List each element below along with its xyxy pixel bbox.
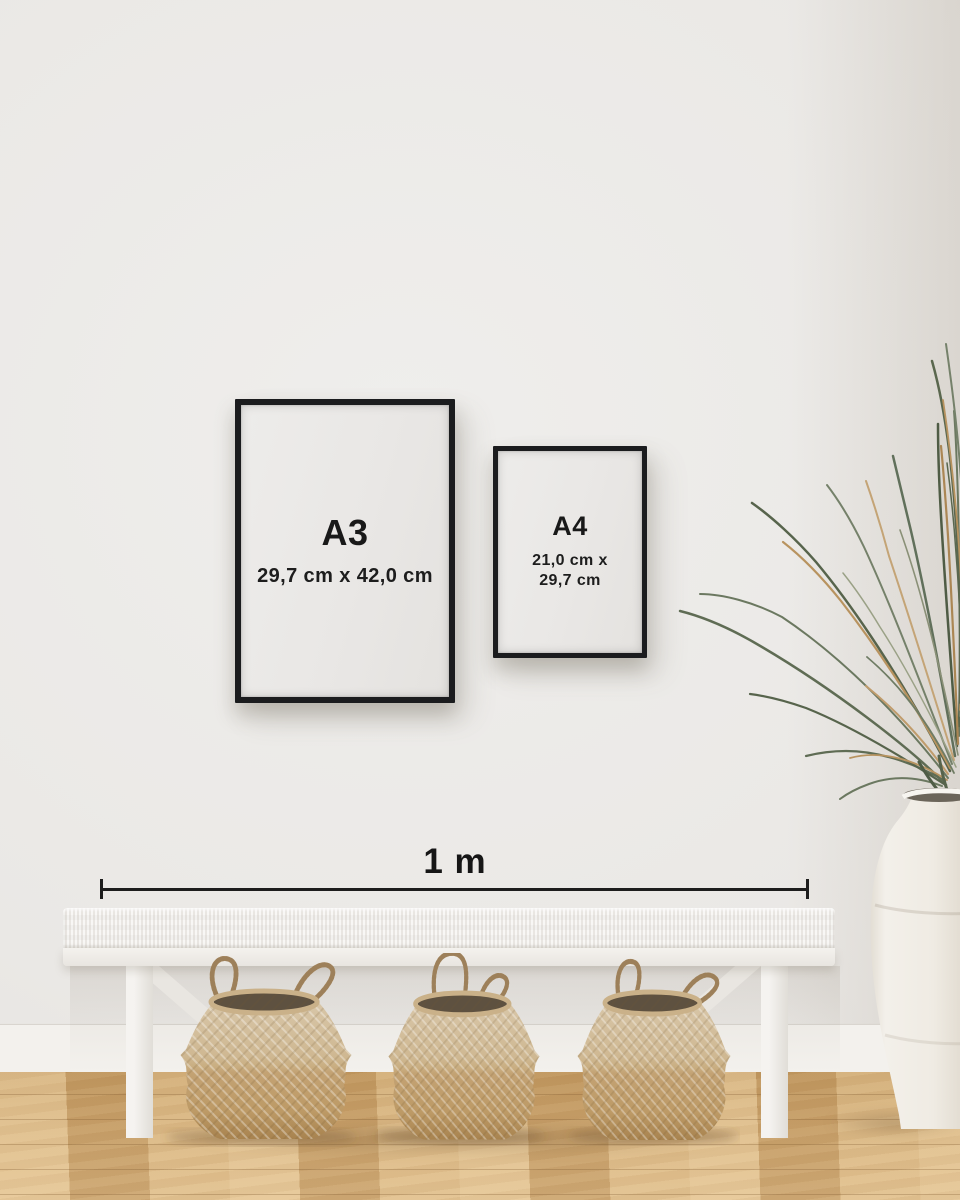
frame-a3-paper: A3 29,7 cm x 42,0 cm [241,405,449,697]
frame-a4-dimensions-line1: 21,0 cm x [532,552,608,569]
bench-leg-right [761,964,788,1138]
frame-a3: A3 29,7 cm x 42,0 cm [235,399,455,703]
basket-2 [388,953,539,1139]
frame-a4-dimensions-line2: 29,7 cm [539,572,601,589]
scale-bar-label: 1 m [355,842,555,882]
scale-bar-tick-left [100,879,103,899]
seagrass-baskets [160,953,740,1153]
bench-woven-top [63,908,835,950]
frame-a3-dimensions: 29,7 cm x 42,0 cm [257,565,433,588]
frame-a4-label: A4 [552,513,588,540]
frame-a3-label: A3 [321,515,368,551]
bench-leg-left [126,964,153,1138]
frame-a4-dimensions: 21,0 cm x 29,7 cm [532,551,608,591]
room-scene: A3 29,7 cm x 42,0 cm A4 21,0 cm x 29,7 c… [0,0,960,1200]
basket-1 [181,959,352,1139]
basket-3 [578,961,731,1140]
scale-bar-tick-right [806,879,809,899]
white-floor-vase [865,785,960,1145]
scale-bar-line [101,888,808,891]
